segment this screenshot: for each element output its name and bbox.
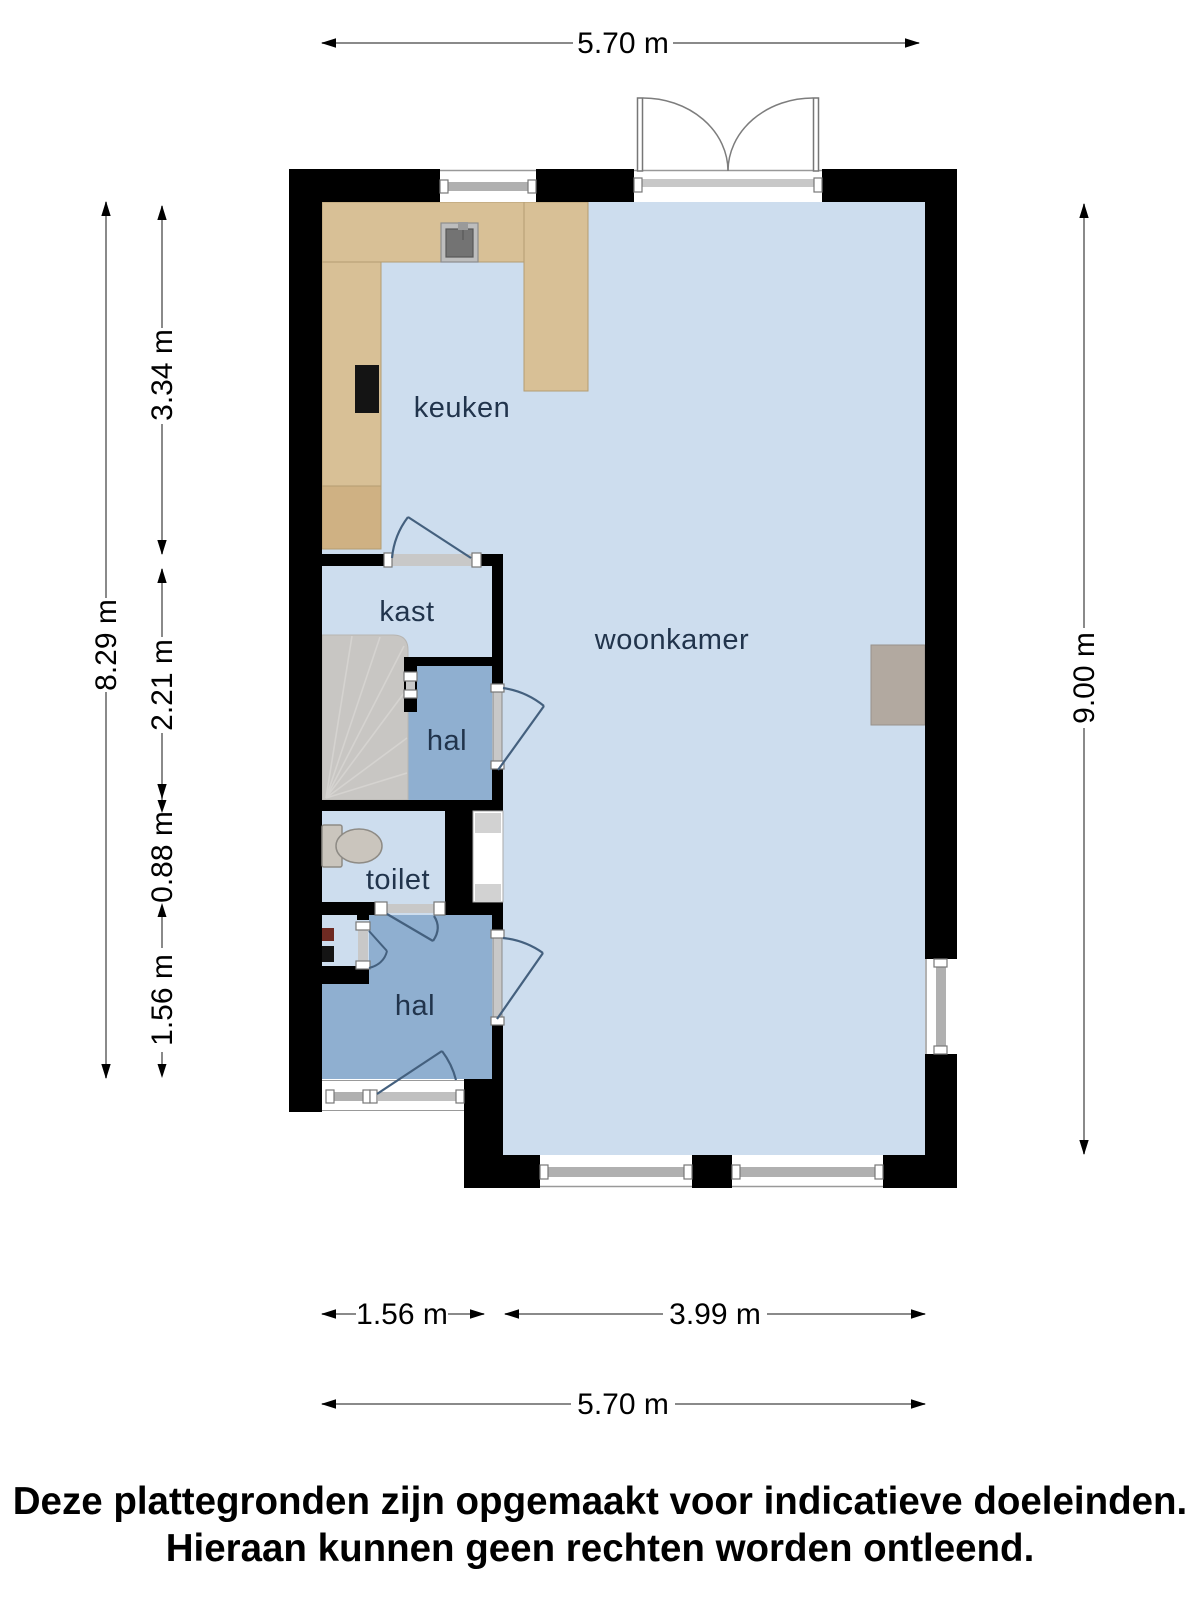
svg-text:5.70 m: 5.70 m [577,1388,669,1421]
svg-text:0.88 m: 0.88 m [146,811,179,903]
svg-text:3.34 m: 3.34 m [146,329,179,421]
svg-text:hal: hal [427,725,467,757]
svg-text:toilet: toilet [366,864,430,896]
svg-text:1.56 m: 1.56 m [356,1298,448,1331]
svg-text:1.56 m: 1.56 m [146,954,179,1046]
svg-text:keuken: keuken [414,392,511,424]
svg-text:woonkamer: woonkamer [594,624,749,656]
svg-text:9.00 m: 9.00 m [1068,632,1101,724]
svg-text:kast: kast [379,596,434,628]
svg-text:5.70 m: 5.70 m [577,27,669,60]
svg-text:8.29 m: 8.29 m [90,599,123,691]
svg-text:3.99 m: 3.99 m [669,1298,761,1331]
svg-text:2.21 m: 2.21 m [146,639,179,731]
svg-text:Hieraan kunnen geen rechten wo: Hieraan kunnen geen rechten worden ontle… [166,1527,1035,1570]
svg-text:Deze plattegronden zijn opgema: Deze plattegronden zijn opgemaakt voor i… [13,1480,1187,1523]
svg-text:hal: hal [395,990,435,1022]
